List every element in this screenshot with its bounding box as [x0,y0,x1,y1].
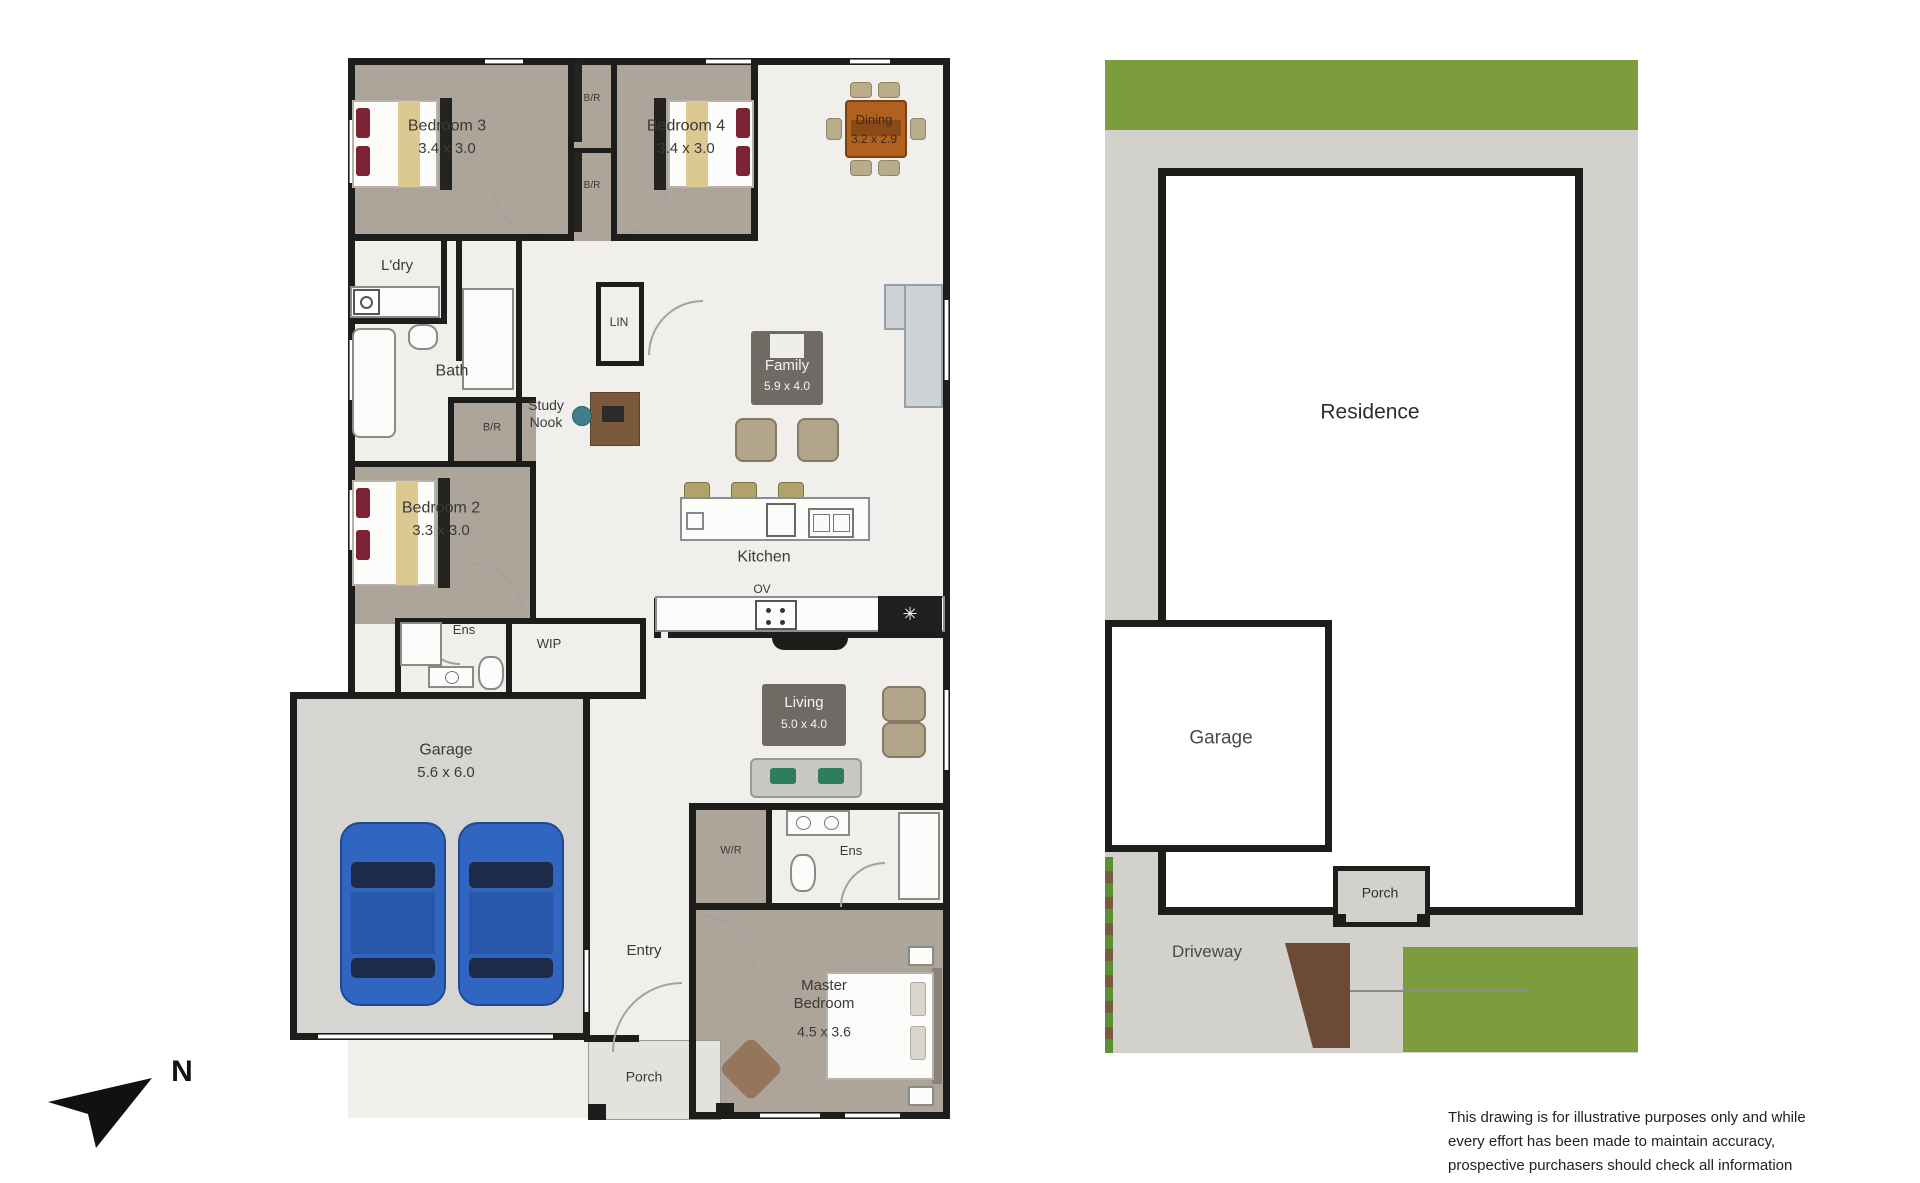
site-label-driveway: Driveway [1172,942,1242,962]
basin-icon [824,816,839,830]
pillow-icon [356,488,370,518]
car-windshield-icon [351,862,435,888]
window [944,300,949,380]
pillow-icon [356,146,370,176]
chair-icon [850,82,872,98]
site-label-porch: Porch [1362,885,1399,902]
family-table-top-icon [770,334,804,358]
disclaimer-line: This drawing is for illustrative purpose… [1448,1106,1806,1130]
window [760,1113,820,1118]
nightstand-icon [908,946,934,966]
cushion-icon [770,768,796,784]
chair-icon [826,118,842,140]
room-label-wip: WIP [537,636,562,652]
shower-icon [898,812,940,900]
wardrobe-icon [574,62,582,142]
room-label-bedroom3: Bedroom 3 [408,116,486,135]
site-label-residence: Residence [1320,399,1419,424]
room-label-living: Living [784,694,823,712]
wall [689,803,943,810]
oven-burners-icon [766,608,771,613]
vanity-icon [428,666,474,688]
chair-icon [850,160,872,176]
room-label-dining: Dining [856,112,893,128]
armchair-icon [882,686,926,722]
disclaimer: This drawing is for illustrative purpose… [1448,1106,1908,1182]
toilet-icon [790,854,816,892]
laptop-icon [602,406,624,422]
room-dims-bedroom4: 3.4 x 3.0 [657,140,715,158]
room-dims-bedroom3: 3.4 x 3.0 [418,140,476,158]
pillow-icon [910,1026,926,1060]
car-roof-icon [469,892,553,954]
porch-post [716,1103,734,1119]
corner-counter-icon [904,284,943,408]
wall [448,397,454,461]
room-label-robe: B/R [584,180,601,192]
car-rear-window-icon [351,958,435,978]
wall [640,618,646,698]
basin-icon [796,816,811,830]
chair-icon [878,160,900,176]
disclaimer-line: every effort has been made to maintain a… [1448,1130,1775,1154]
cushion-icon [818,768,844,784]
floor-plan: ✳ [0,0,1000,1183]
wall [441,241,447,319]
room-label-garage: Garage [419,740,472,759]
room-label-ensuite: Ens [453,622,475,638]
wall [290,692,646,699]
room-dims-dining: 3.2 x 2.9 [851,132,897,146]
porch-post [588,1104,606,1120]
site-porch-post [1333,914,1346,927]
driveway-boundary-dashes [1105,857,1113,1053]
pillow-icon [736,108,750,138]
fridge-icon: ✳ [878,596,942,632]
room-dims-bedroom2: 3.3 x 3.0 [412,522,470,540]
armchair-icon [797,418,839,462]
window [485,59,523,64]
room-label-porch: Porch [626,1069,663,1086]
wall [596,282,601,366]
chair-icon [878,82,900,98]
window [944,690,949,770]
room-label-wir: W/R [720,844,741,857]
room-label-family: Family [765,357,809,375]
site-plan: Residence Garage Porch Driveway [1000,0,1920,1183]
room-dims-living: 5.0 x 4.0 [781,717,827,731]
room-label-linen: LIN [610,315,629,329]
wall [639,282,644,366]
armchair-icon [882,722,926,758]
room-label-oven: OV [753,582,770,596]
car-icon [458,822,564,1006]
room-label-study-nook: Study Nook [511,397,581,431]
pillow-icon [356,530,370,560]
wall [290,692,297,1040]
room-label-robe: B/R [584,93,601,105]
rangehood-icon [772,638,848,650]
room-dims-family: 5.9 x 4.0 [764,379,810,393]
wall [348,234,574,241]
toilet-icon [408,324,438,350]
wardrobe-icon [574,152,582,232]
fence-line [1350,990,1530,992]
wall [506,618,512,698]
window [845,1113,900,1118]
pillow-icon [910,982,926,1016]
wall [611,234,757,241]
car-rear-window-icon [469,958,553,978]
shower-icon [462,288,514,390]
wall [516,241,522,467]
nightstand-icon [908,1086,934,1106]
dishwasher-icon [766,503,796,537]
pillow-icon [736,146,750,176]
washer-drum-icon [360,296,373,309]
basin-icon [445,671,459,684]
disclaimer-line: prospective purchasers should check all … [1448,1154,1792,1178]
wall [348,318,447,324]
car-windshield-icon [469,862,553,888]
north-label: N [171,1054,193,1090]
sink-icon [808,508,854,538]
armchair-icon [735,418,777,462]
wall [943,58,950,1118]
floorplan-page: ✳ [0,0,1920,1183]
room-label-bedroom4: Bedroom 4 [647,116,725,135]
room-label-entry: Entry [626,942,661,960]
cooktop-icon [686,512,704,530]
room-dims-master-bedroom: 4.5 x 3.6 [797,1024,851,1041]
site-label-garage: Garage [1189,728,1252,751]
wall [530,461,536,624]
sofa-icon [750,758,862,798]
car-roof-icon [351,892,435,954]
oven-icon [755,600,797,630]
room-label-ensuite: Ens [840,843,862,859]
wall [689,903,943,910]
room-dims-garage: 5.6 x 6.0 [417,764,475,782]
room-label-robe: B/R [483,421,501,434]
sink-bowl-icon [813,514,830,532]
washer-icon [353,289,380,315]
window [706,59,751,64]
wall [596,282,644,287]
vanity-icon [786,810,850,836]
garage-door [318,1034,553,1039]
shower-icon [400,622,442,666]
sink-bowl-icon [833,514,850,532]
wall [596,361,644,366]
site-porch-post [1417,914,1430,927]
blanket-icon [398,101,420,187]
pillow-icon [356,108,370,138]
room-label-bedroom2: Bedroom 2 [402,498,480,517]
chair-icon [910,118,926,140]
room-label-master-bedroom: Master Bedroom [769,977,879,1013]
site-front-grass [1403,947,1638,1052]
car-icon [340,822,446,1006]
room-label-bath: Bath [436,361,469,380]
toilet-icon [478,656,504,690]
room-label-kitchen: Kitchen [737,547,790,566]
site-rear-grass [1105,60,1638,130]
wall [689,803,696,1112]
wall [348,461,536,467]
window [850,59,890,64]
room-label-laundry: L'dry [381,257,413,275]
wall [766,803,772,910]
door-opening [584,950,589,1012]
bathtub-icon [352,328,396,438]
